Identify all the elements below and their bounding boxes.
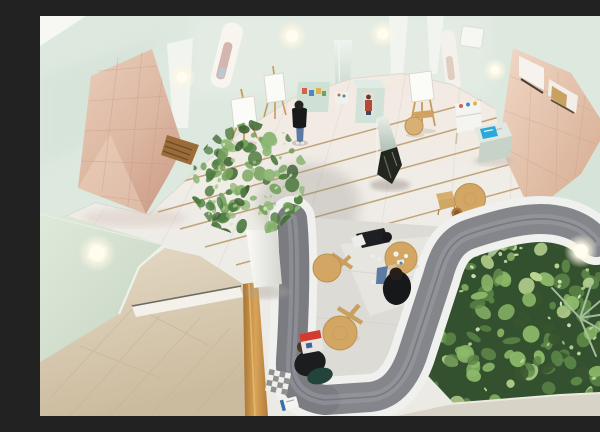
wall-lamp-2 xyxy=(168,63,196,91)
wall-lamp-6 xyxy=(564,234,598,268)
atrium-photo-svg xyxy=(40,16,600,416)
display-pedestal xyxy=(335,92,348,104)
wall-frame xyxy=(460,26,485,49)
wall-lamp-3 xyxy=(369,20,397,48)
magazine xyxy=(299,330,324,354)
wooden-stool xyxy=(405,117,424,138)
display-box-2-art xyxy=(363,92,374,116)
wall-lamp-5 xyxy=(78,234,116,272)
wall-lamp-4 xyxy=(483,58,507,82)
pink-wall-floor-shadow xyxy=(83,209,187,227)
checkered-cushion xyxy=(265,369,291,395)
display-box-2 xyxy=(353,80,385,123)
atrium-photo: Overhead view of a museum atrium lounge:… xyxy=(40,16,600,416)
wall-lamp-1 xyxy=(277,21,307,51)
